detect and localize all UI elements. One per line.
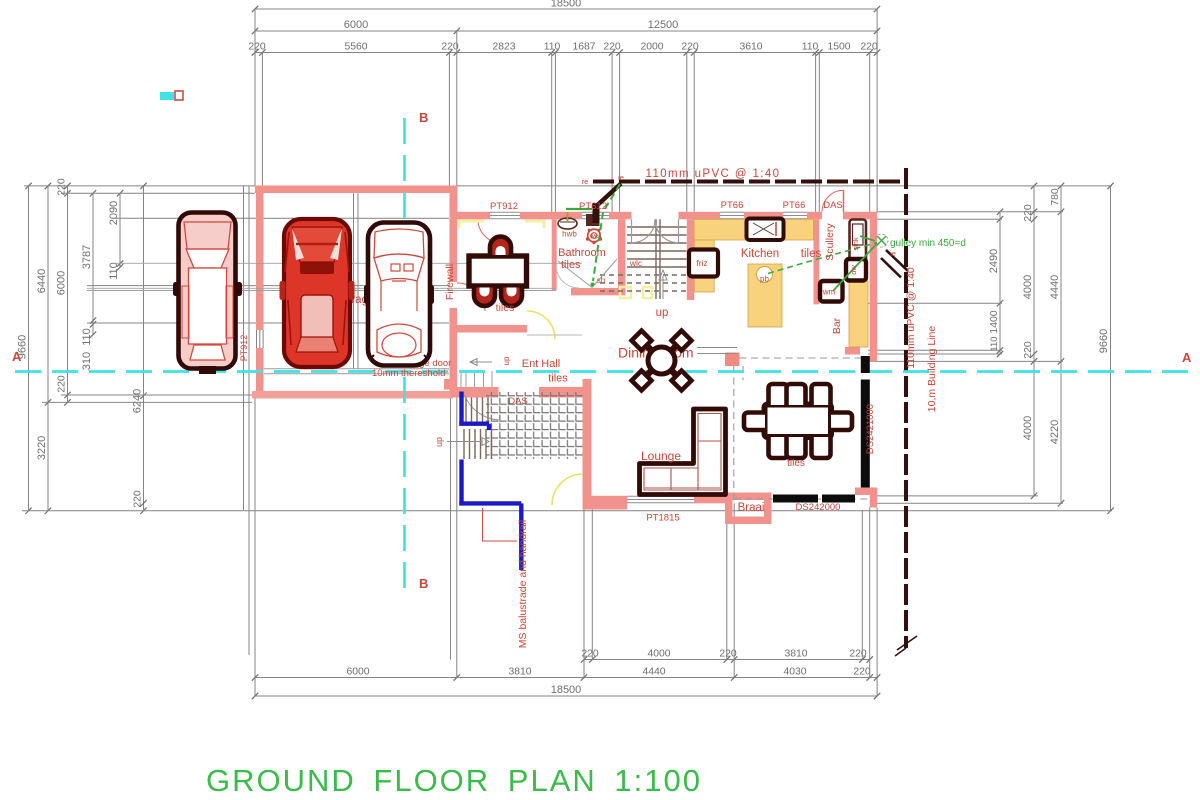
- svg-text:B: B: [419, 576, 428, 591]
- svg-text:9660: 9660: [1098, 329, 1110, 353]
- svg-text:dw: dw: [849, 265, 858, 275]
- svg-text:wc: wc: [589, 234, 599, 241]
- svg-text:220: 220: [849, 649, 867, 660]
- svg-text:sh: sh: [597, 276, 605, 285]
- svg-text:up: up: [502, 356, 511, 365]
- svg-text:6000: 6000: [346, 667, 369, 678]
- svg-text:Braai: Braai: [738, 502, 765, 514]
- svg-text:10mm thereshold: 10mm thereshold: [372, 368, 445, 379]
- svg-text:1687: 1687: [572, 42, 595, 53]
- svg-text:110: 110: [81, 328, 93, 346]
- svg-text:220: 220: [860, 42, 878, 53]
- svg-text:220: 220: [133, 490, 144, 508]
- svg-text:110: 110: [544, 42, 561, 53]
- svg-text:PT912: PT912: [239, 335, 249, 362]
- svg-text:4440: 4440: [642, 667, 665, 678]
- svg-text:1400: 1400: [989, 310, 1000, 333]
- svg-text:PT66: PT66: [783, 200, 806, 211]
- svg-text:PT612: PT612: [579, 201, 607, 212]
- svg-text:DAS: DAS: [508, 396, 528, 407]
- svg-text:re: re: [582, 177, 589, 186]
- svg-text:tiles: tiles: [801, 248, 822, 260]
- svg-text:18500: 18500: [551, 0, 582, 10]
- svg-text:780: 780: [1050, 188, 1061, 206]
- svg-text:6240: 6240: [132, 389, 144, 413]
- svg-text:3810: 3810: [784, 649, 807, 660]
- svg-text:DAS: DAS: [823, 200, 843, 211]
- svg-text:220: 220: [441, 42, 459, 53]
- svg-text:Scullery: Scullery: [824, 223, 836, 261]
- svg-text:110: 110: [989, 336, 1000, 351]
- svg-text:110mm uPVC @ 1:40: 110mm uPVC @ 1:40: [905, 267, 917, 369]
- svg-text:Lounge: Lounge: [641, 449, 681, 463]
- svg-text:220: 220: [681, 42, 699, 53]
- svg-text:wlc: wlc: [629, 258, 643, 268]
- svg-text:wm: wm: [822, 288, 836, 297]
- svg-text:2490: 2490: [988, 249, 1000, 273]
- svg-text:ie: ie: [618, 173, 624, 182]
- svg-text:MS balustrade and handrail: MS balustrade and handrail: [517, 520, 529, 648]
- svg-text:3220: 3220: [36, 436, 48, 460]
- svg-text:3787: 3787: [81, 245, 93, 269]
- svg-text:DS2421000: DS2421000: [865, 404, 876, 454]
- svg-text:18500: 18500: [551, 684, 582, 696]
- svg-text:220: 220: [57, 375, 68, 393]
- svg-text:10,m Building Line: 10,m Building Line: [926, 326, 938, 413]
- svg-text:sink: sink: [851, 237, 860, 251]
- svg-text:Bar: Bar: [831, 317, 843, 334]
- svg-text:6000: 6000: [344, 19, 368, 31]
- svg-text:pb: pb: [760, 275, 769, 284]
- svg-text:Kitchen: Kitchen: [741, 248, 779, 260]
- svg-text:220: 220: [603, 42, 621, 53]
- svg-text:Firewall: Firewall: [444, 264, 456, 300]
- svg-text:5560: 5560: [344, 42, 367, 53]
- svg-text:12500: 12500: [648, 19, 679, 31]
- svg-text:4000: 4000: [1022, 416, 1034, 440]
- svg-text:220: 220: [248, 42, 266, 53]
- svg-text:Bathroom: Bathroom: [558, 247, 606, 259]
- svg-text:110: 110: [802, 42, 819, 53]
- svg-text:up: up: [656, 307, 669, 319]
- svg-text:4220: 4220: [1049, 420, 1061, 444]
- svg-text:GROUND FLOOR PLAN 1:100: GROUND FLOOR PLAN 1:100: [206, 763, 702, 798]
- svg-text:3810: 3810: [508, 667, 531, 678]
- svg-text:6440: 6440: [36, 269, 48, 293]
- svg-text:4000: 4000: [1022, 275, 1034, 299]
- svg-text:2090: 2090: [108, 201, 120, 225]
- svg-text:4030: 4030: [783, 667, 806, 678]
- svg-text:A: A: [12, 349, 22, 364]
- svg-text:3610: 3610: [739, 42, 762, 53]
- svg-text:1500: 1500: [827, 42, 850, 53]
- svg-text:220: 220: [1023, 341, 1034, 359]
- svg-text:110: 110: [108, 262, 120, 280]
- svg-text:310: 310: [81, 352, 93, 370]
- svg-text:tiles: tiles: [496, 302, 515, 314]
- svg-text:A: A: [1182, 350, 1192, 365]
- svg-text:PT1815: PT1815: [646, 513, 679, 524]
- svg-text:up: up: [434, 437, 444, 447]
- svg-text:220: 220: [853, 667, 871, 678]
- svg-text:tiles: tiles: [561, 259, 581, 271]
- svg-text:ie: ie: [890, 249, 896, 258]
- svg-text:2000: 2000: [640, 42, 663, 53]
- svg-text:4000: 4000: [647, 649, 670, 660]
- svg-text:PT66: PT66: [721, 200, 744, 211]
- svg-text:110mm uPVC @ 1:40: 110mm uPVC @ 1:40: [646, 168, 781, 180]
- svg-text:2823: 2823: [492, 42, 515, 53]
- svg-text:PT912: PT912: [490, 201, 518, 212]
- svg-text:gulley min 450=d: gulley min 450=d: [890, 238, 966, 249]
- svg-text:hwb: hwb: [562, 230, 577, 239]
- svg-text:DS242000: DS242000: [796, 502, 841, 513]
- svg-text:tiles: tiles: [787, 458, 805, 469]
- svg-text:4440: 4440: [1049, 275, 1061, 299]
- svg-text:tiles: tiles: [548, 373, 568, 385]
- svg-text:B: B: [419, 110, 428, 125]
- svg-text:Ent Hall: Ent Hall: [522, 358, 561, 370]
- svg-text:220: 220: [1023, 204, 1034, 222]
- svg-text:friz: friz: [696, 258, 707, 268]
- svg-text:6000: 6000: [56, 271, 68, 295]
